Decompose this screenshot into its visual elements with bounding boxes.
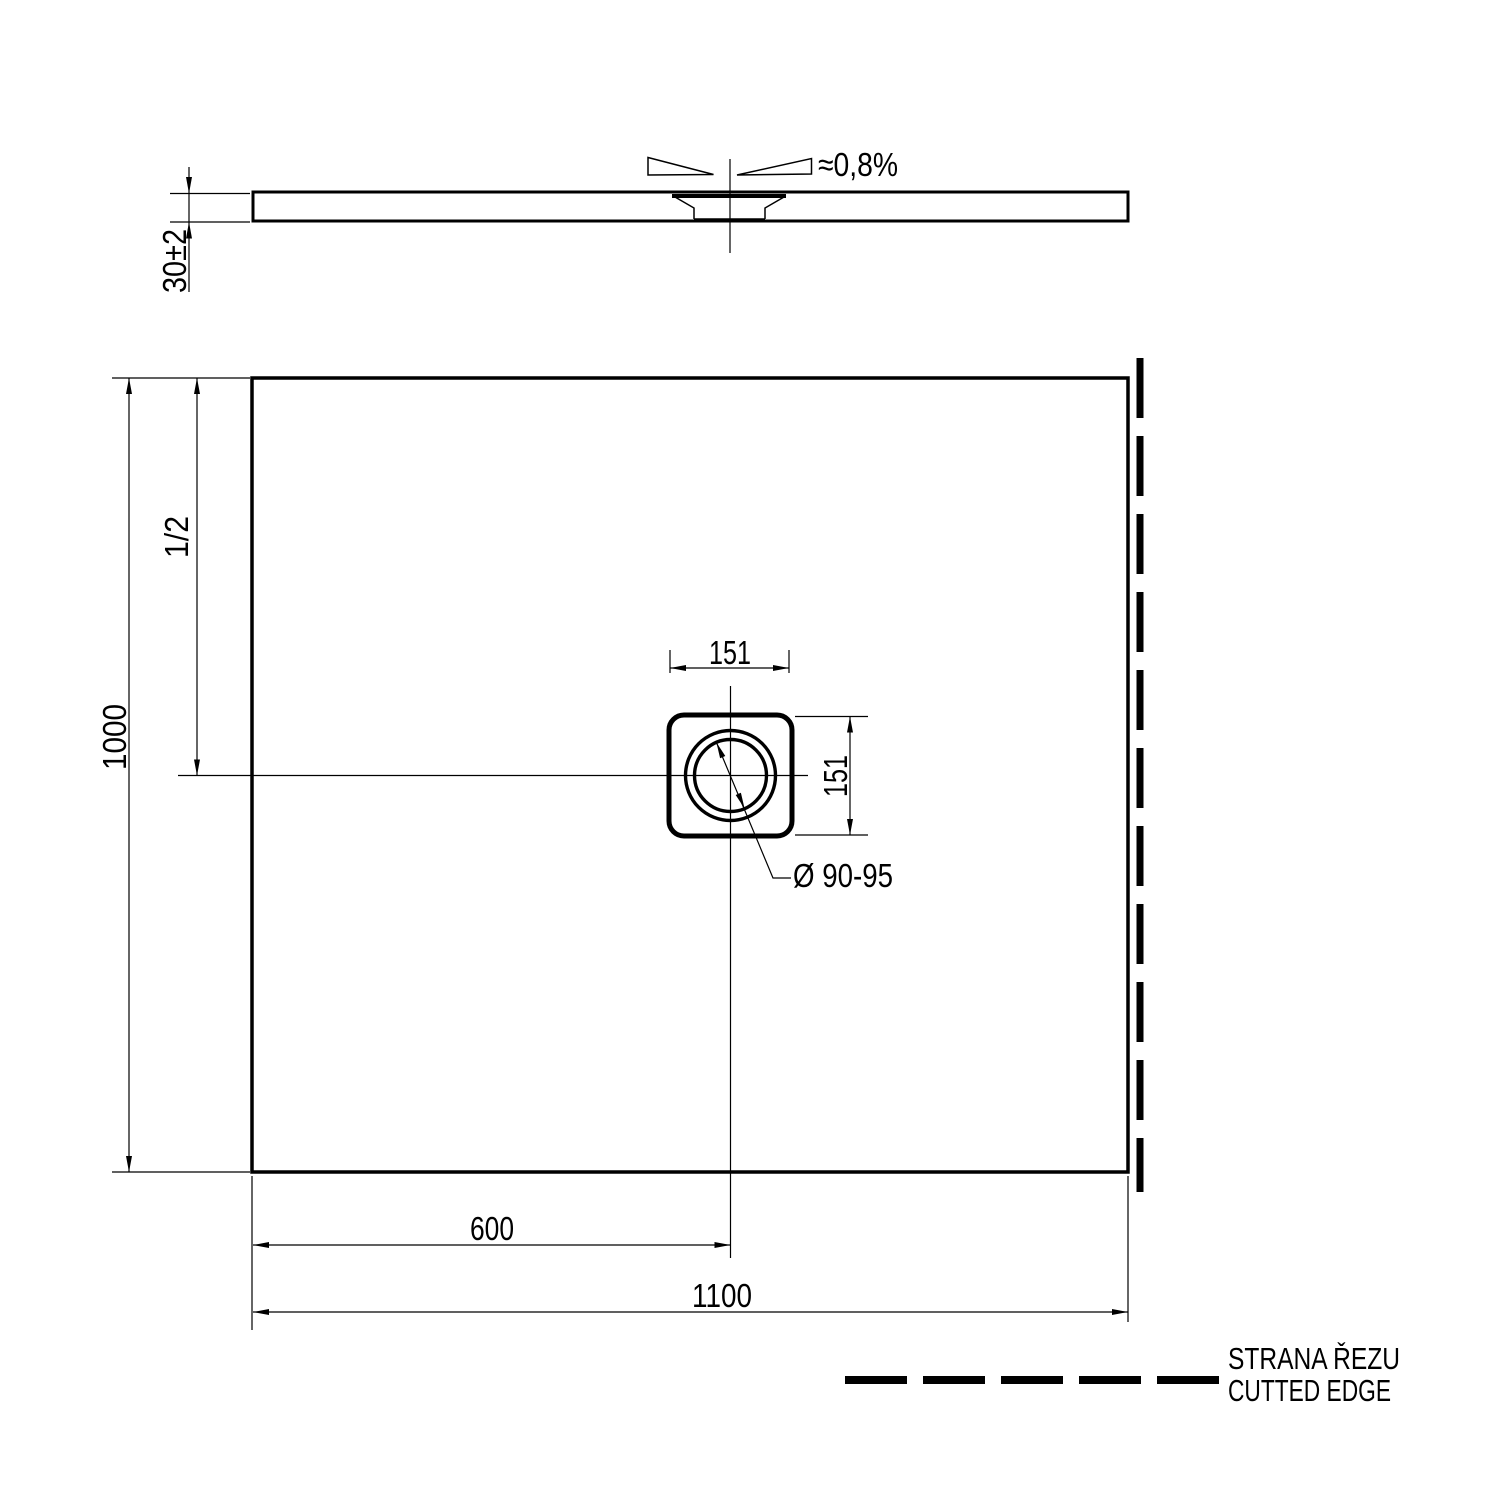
arrow-right-icon (773, 665, 789, 671)
technical-drawing-canvas: ≈0,8% 30±2 151 (0, 0, 1500, 1500)
arrow-up-left-icon (716, 742, 725, 758)
legend-label-english: CUTTED EDGE (1228, 1373, 1391, 1408)
slope-dimension-label: ≈0,8% (818, 146, 898, 183)
arrow-down-icon (194, 760, 200, 776)
arrow-right-icon (1112, 1309, 1128, 1315)
drain-width-dimension: 151 (670, 634, 789, 673)
arrow-up-icon (194, 378, 200, 394)
overall-width-label: 1100 (692, 1277, 752, 1314)
arrow-left-icon (253, 1309, 269, 1315)
arrow-up-icon (126, 378, 132, 394)
drain-offset-label: 600 (470, 1210, 514, 1247)
arrow-down-icon (126, 1156, 132, 1172)
side-elevation-view: ≈0,8% 30±2 (156, 146, 1128, 293)
arrow-left-icon (253, 1242, 269, 1248)
drain-diameter-label: Ø 90-95 (793, 857, 893, 894)
bottom-extension-lines (252, 1176, 1128, 1330)
overall-height-label: 1000 (96, 704, 133, 770)
thickness-dimension: 30±2 (156, 167, 250, 293)
arrow-left-icon (670, 665, 686, 671)
technical-drawing-page: ≈0,8% 30±2 151 (0, 0, 1500, 1500)
arrow-up-icon (847, 717, 853, 733)
arrow-down-icon (847, 819, 853, 835)
legend-label-czech: STRANA ŘEZU (1228, 1341, 1400, 1376)
drain-width-label: 151 (709, 634, 751, 671)
slope-triangle-left (648, 158, 714, 176)
bottom-dimensions: 600 1100 (252, 1176, 1128, 1330)
slope-triangle-right (737, 159, 812, 176)
thickness-extension-lines (170, 194, 250, 223)
thickness-dimension-label: 30±2 (156, 229, 193, 293)
arrow-right-icon (715, 1242, 731, 1248)
drain-height-label: 151 (817, 755, 854, 797)
arrow-down-icon (186, 177, 192, 194)
arrow-down-right-icon (736, 793, 745, 809)
cut-edge-legend: STRANA ŘEZU CUTTED EDGE (845, 1341, 1400, 1408)
slope-symbol: ≈0,8% (648, 146, 898, 183)
plan-view: 151 151 Ø 90-95 1000 1/2 (96, 358, 1140, 1330)
half-height-label: 1/2 (158, 516, 195, 558)
